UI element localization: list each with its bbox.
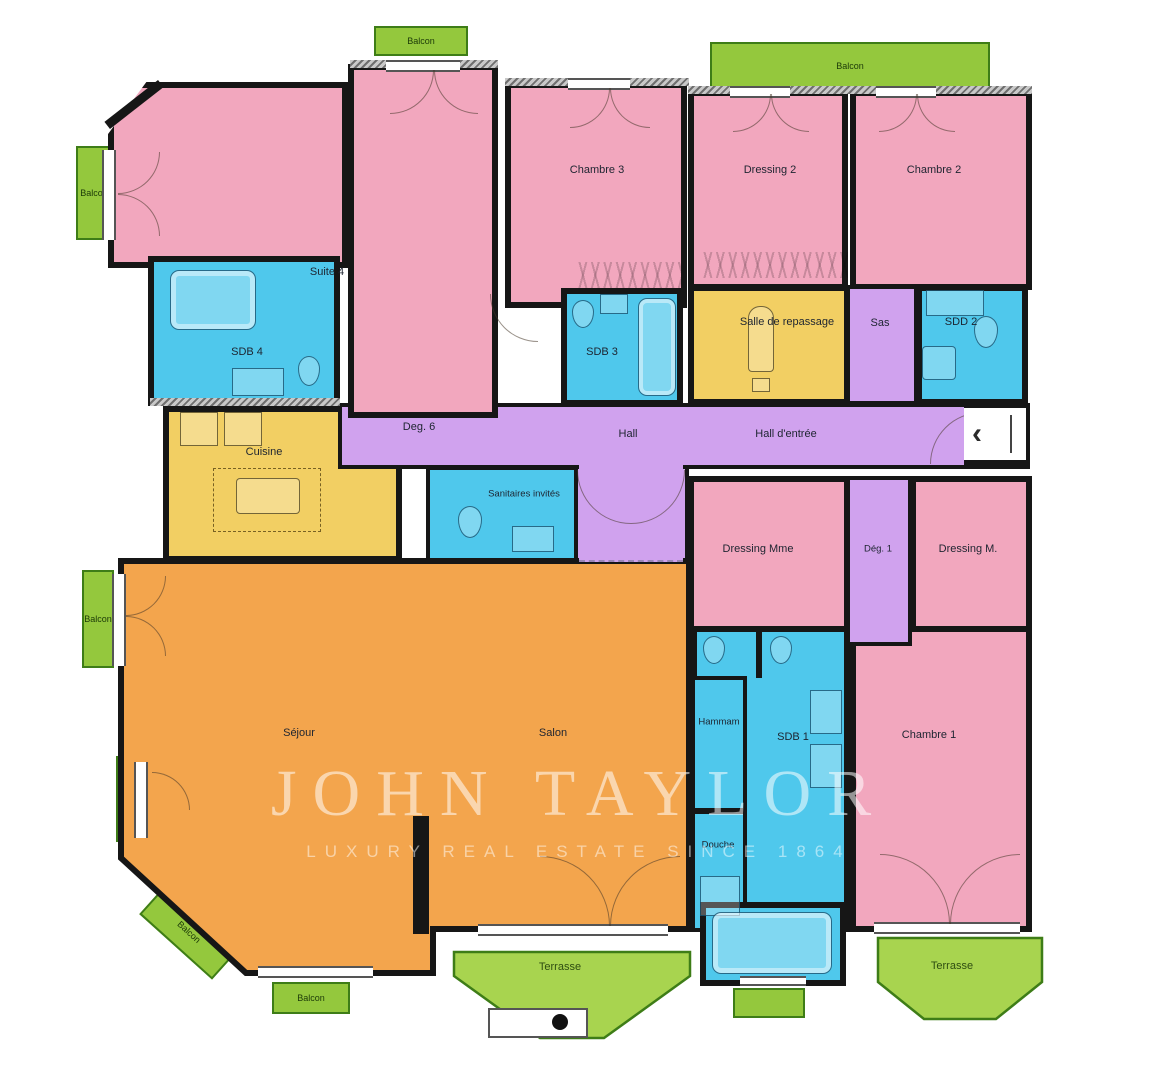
label-dressing-m: Dressing M.	[939, 543, 998, 555]
label-hammam: Hammam	[698, 717, 739, 728]
window	[258, 966, 373, 978]
label-deg-1: Dég. 1	[864, 544, 892, 555]
bathtub-icon	[712, 912, 832, 974]
label-deg-6: Deg. 6	[403, 421, 435, 433]
label-terrasse-center: Terrasse	[539, 961, 581, 973]
label-chambre-2: Chambre 2	[907, 164, 961, 176]
balcony-left-mid: Balcon	[82, 570, 114, 668]
shower-icon	[700, 876, 740, 916]
sink-icon	[232, 368, 284, 396]
sink-icon	[926, 290, 984, 316]
label-hall: Hall	[619, 428, 638, 440]
room-sas	[846, 285, 918, 405]
closet-strip	[575, 262, 681, 288]
label-dressing-2: Dressing 2	[744, 164, 797, 176]
balcony-label: Balcon	[84, 614, 112, 624]
floor-plan: Balcon Balcon Balcon Balcon Balcon Balco…	[0, 0, 1158, 1073]
label-sejour: Séjour	[283, 727, 315, 739]
iron-icon	[752, 378, 770, 392]
label-sdd-2: SDD 2	[945, 316, 977, 328]
sink-icon	[810, 744, 842, 788]
label-sas: Sas	[871, 317, 890, 329]
balcony-top-right: Balcon	[710, 42, 990, 90]
label-salle-de-repassage: Salle de repassage	[740, 316, 834, 328]
room-suite-4-annex	[348, 64, 498, 418]
entrance-recess: ‹	[964, 402, 1026, 466]
label-chambre-1: Chambre 1	[902, 729, 956, 741]
sink-icon	[512, 526, 554, 552]
label-sdb-1: SDB 1	[777, 731, 809, 743]
sink-icon	[810, 690, 842, 734]
stove-icon	[236, 478, 300, 514]
balcony-label: Balcon	[407, 36, 435, 46]
kitchen-sink-icon	[224, 412, 262, 446]
window	[102, 150, 116, 240]
wall-wc-divider	[756, 630, 762, 678]
label-cuisine: Cuisine	[246, 446, 283, 458]
balcony-label: Balcon	[297, 993, 325, 1003]
balcony-bottom: Balcon	[272, 982, 350, 1014]
washer-icon	[922, 346, 956, 380]
label-terrasse-right: Terrasse	[931, 960, 973, 972]
wall-hatch	[150, 398, 340, 406]
label-salon: Salon	[539, 727, 567, 739]
label-sanitaires-invites: Sanitaires invités	[488, 489, 560, 500]
window	[740, 976, 806, 986]
label-sdb-4: SDB 4	[231, 346, 263, 358]
label-douche: Douche	[702, 840, 735, 851]
label-dressing-mme: Dressing Mme	[723, 543, 794, 555]
window	[112, 574, 126, 666]
room-deg-1	[846, 476, 912, 646]
window	[134, 762, 148, 838]
salon-double-door-opening	[579, 552, 683, 562]
wall-sejour-salon	[413, 816, 429, 934]
label-sdb-3: SDB 3	[586, 346, 618, 358]
balcony-top-small: Balcon	[374, 26, 468, 56]
entrance-chevron-icon: ‹	[972, 419, 982, 449]
fridge-icon	[180, 412, 218, 446]
room-hammam	[691, 676, 747, 812]
terrace-step	[488, 1008, 588, 1038]
terrace-post	[552, 1014, 568, 1030]
label-suite-4: Suite 4	[310, 266, 344, 278]
label-hall-entree: Hall d'entrée	[755, 428, 816, 440]
room-sanitaires-invites	[426, 466, 578, 562]
balcony-label: Balcon	[836, 61, 864, 71]
label-chambre-3: Chambre 3	[570, 164, 624, 176]
entrance-door-leaf	[1010, 415, 1012, 453]
terrace-right	[876, 936, 1044, 1022]
closet-strip	[700, 252, 848, 278]
bathtub-icon	[170, 270, 256, 330]
balcony-under-bath	[733, 988, 805, 1018]
sink-icon	[600, 294, 628, 314]
bathtub-icon	[638, 298, 676, 396]
